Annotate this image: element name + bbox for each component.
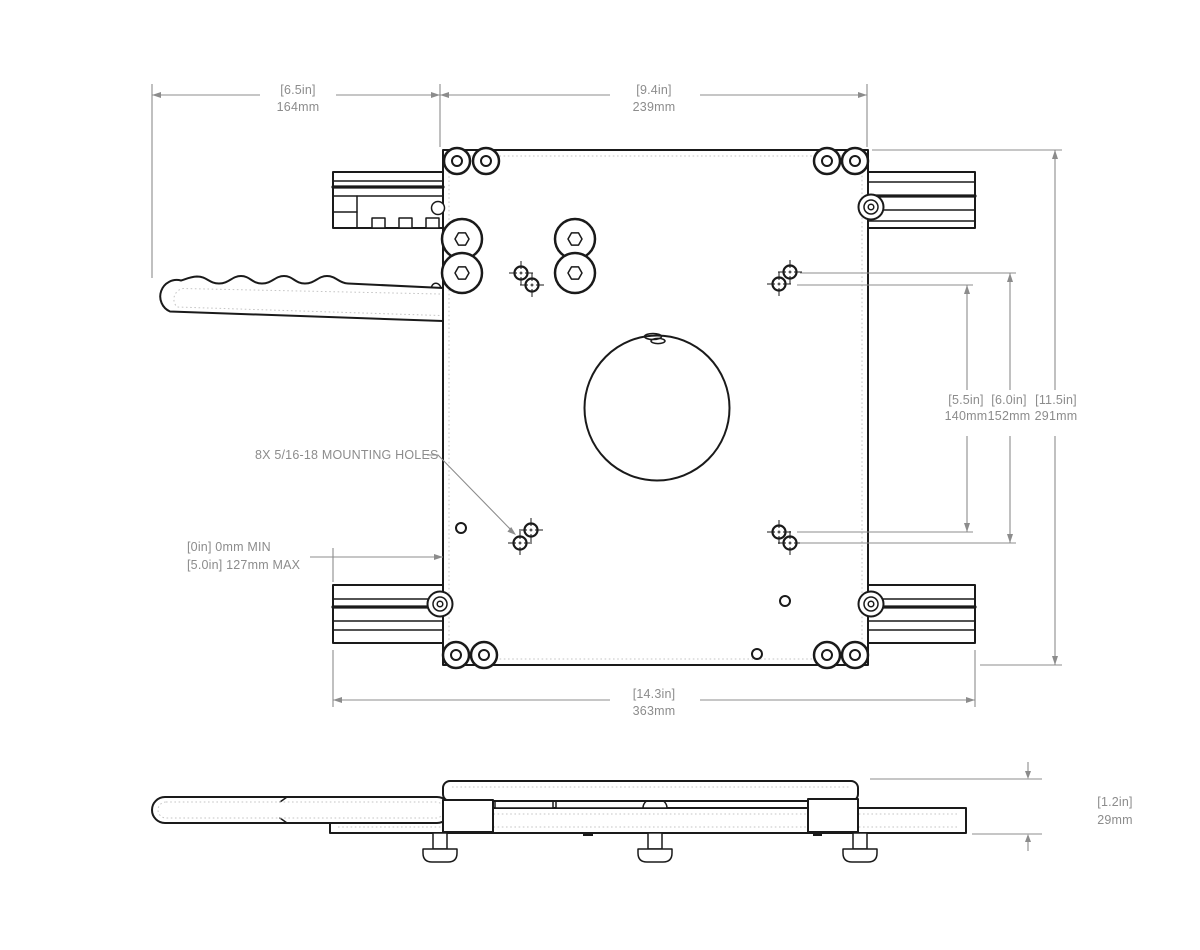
- ratchet-pin: [432, 202, 445, 215]
- mounting-screw: [423, 833, 457, 862]
- roller: [814, 148, 840, 174]
- top-plate-profile: [443, 781, 858, 801]
- dim-plate-height-mm-label: 291mm: [1035, 409, 1078, 423]
- right-carriage-block: [808, 799, 858, 832]
- mounting-screw: [843, 833, 877, 862]
- release-handle: [160, 276, 443, 321]
- right-upper-slide-rail: [859, 172, 976, 228]
- dim-overall-width-in-label: [14.3in]: [633, 687, 676, 701]
- dim-plate-width-in-label: [9.4in]: [636, 83, 671, 97]
- bearing-roller: [442, 253, 482, 293]
- dim-profile-height-mm-label: 29mm: [1097, 813, 1133, 827]
- side-profile-view: [152, 781, 966, 862]
- left-upper-slide-rail: [333, 172, 445, 228]
- roller: [814, 642, 840, 668]
- dim-plate-width-mm-label: 239mm: [633, 100, 676, 114]
- right-lower-slide-rail: [859, 585, 976, 643]
- dim-hole-span-inner-mm-label: 140mm: [945, 409, 988, 423]
- left-carriage-block: [443, 800, 493, 832]
- dim-profile-height: [1.2in] 29mm: [870, 762, 1133, 851]
- mounting-screw: [638, 833, 672, 862]
- stop-nub: [583, 832, 593, 836]
- roller: [444, 148, 470, 174]
- ratchet-tooth: [426, 218, 439, 228]
- dim-profile-height-in-label: [1.2in]: [1097, 795, 1132, 809]
- roller: [473, 148, 499, 174]
- stop-nub: [813, 832, 822, 836]
- dim-plate-width: [9.4in] 239mm: [440, 83, 867, 147]
- roller: [443, 642, 469, 668]
- dim-hole-span-outer-mm-label: 152mm: [988, 409, 1031, 423]
- dim-hole-span-inner-in-label: [5.5in]: [948, 393, 983, 407]
- roller: [842, 148, 868, 174]
- pilot-hole: [780, 596, 790, 606]
- dim-travel-min-label: [0in] 0mm MIN: [187, 540, 271, 554]
- bearing-roller: [555, 253, 595, 293]
- dim-travel: [0in] 0mm MIN [5.0in] 127mm MAX: [187, 540, 443, 582]
- top-view: [160, 148, 975, 668]
- dim-hole-span-outer-in-label: [6.0in]: [991, 393, 1026, 407]
- dim-handle-mm-label: 164mm: [277, 100, 320, 114]
- dim-overall-width-mm-label: 363mm: [633, 704, 676, 718]
- dim-handle-in-label: [6.5in]: [280, 83, 315, 97]
- ratchet-tooth: [399, 218, 412, 228]
- left-lower-slide-rail: [333, 585, 453, 643]
- roller: [471, 642, 497, 668]
- ratchet-tooth: [372, 218, 385, 228]
- mounting-plate: [443, 150, 868, 665]
- technical-drawing-canvas: [6.5in] 164mm [9.4in] 239mm [14.3in] 363…: [0, 0, 1200, 950]
- pilot-hole: [456, 523, 466, 533]
- dim-travel-max-label: [5.0in] 127mm MAX: [187, 558, 301, 572]
- roller: [842, 642, 868, 668]
- callout-mounting-holes-label: 8X 5/16-18 MOUNTING HOLES: [255, 448, 439, 462]
- handle-profile: [152, 797, 450, 823]
- dim-plate-height-in-label: [11.5in]: [1035, 393, 1077, 407]
- pilot-hole: [752, 649, 762, 659]
